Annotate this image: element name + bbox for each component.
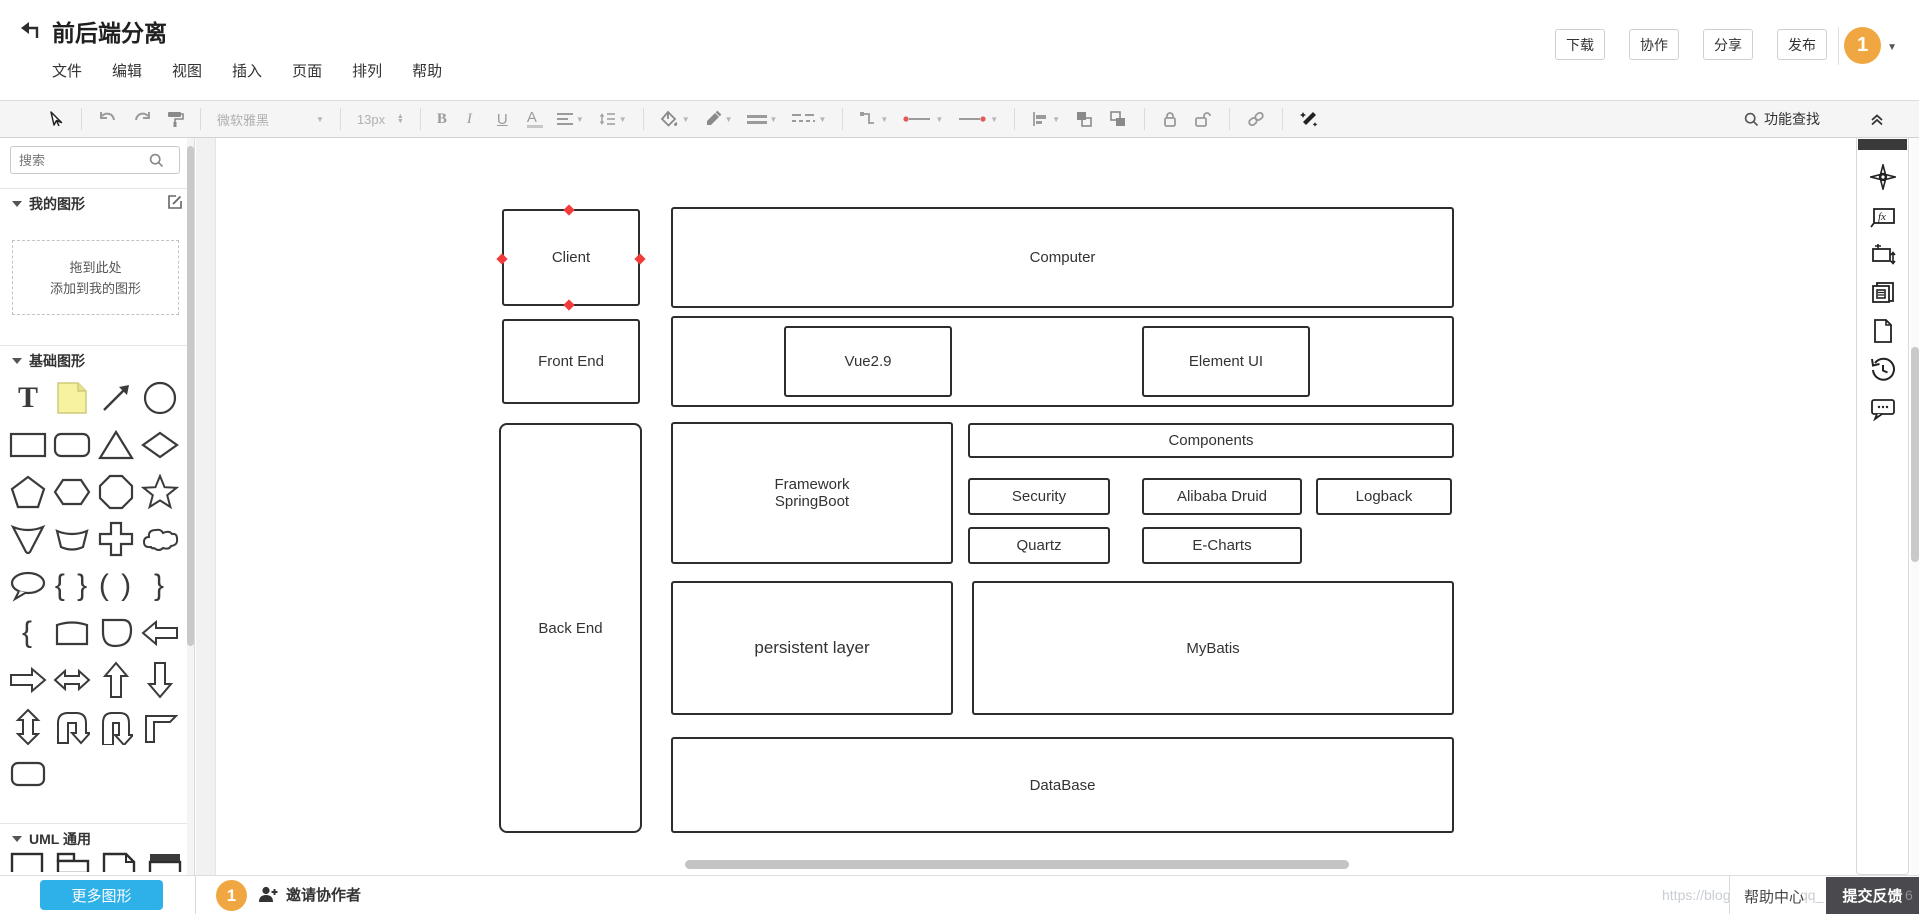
send-backward-button[interactable] (1108, 110, 1128, 128)
format-painter-icon[interactable] (166, 110, 184, 128)
font-color-button[interactable]: A (527, 111, 543, 128)
shape-star[interactable] (138, 472, 182, 512)
node-element-ui[interactable]: Element UI (1142, 326, 1310, 397)
format-toolbar: 微软雅黑▼ 13px ▲▼ B I U A ▼ ▼ ▼ ▼ ▼ ▼ (0, 100, 1919, 138)
node-framework-springboot[interactable]: Framework SpringBoot (671, 422, 953, 564)
section-basic-shapes[interactable]: 基础图形 (0, 345, 195, 375)
collaborator-avatar[interactable]: 1 (216, 880, 247, 911)
menu-insert[interactable]: 插入 (232, 60, 262, 81)
toolbar-separator (1144, 108, 1145, 130)
node-echarts[interactable]: E-Charts (1142, 527, 1302, 564)
chevron-down-icon (12, 358, 22, 364)
right-tool-panel: fx (1856, 138, 1909, 875)
lock-icon[interactable] (1161, 110, 1179, 128)
toolbar-separator (1229, 108, 1230, 130)
node-mybatis[interactable]: MyBatis (972, 581, 1454, 715)
node-quartz[interactable]: Quartz (968, 527, 1110, 564)
menu-view[interactable]: 视图 (172, 60, 202, 81)
line-width-button[interactable]: ▼ (747, 115, 778, 124)
hyperlink-icon[interactable] (1246, 110, 1266, 128)
stroke-color-button[interactable]: ▼ (704, 110, 733, 128)
edit-my-shapes-icon[interactable] (167, 194, 183, 213)
feature-search[interactable]: 功能查找 (1744, 109, 1820, 129)
page-title: 前后端分离 (52, 14, 167, 48)
navigator-icon[interactable] (1870, 164, 1896, 190)
connector-type-button[interactable]: ▼ (859, 111, 888, 127)
canvas-vertical-scrollbar[interactable] (1911, 138, 1919, 875)
shape-brace-pair[interactable]: { } (50, 566, 94, 606)
toolbar-separator (420, 108, 421, 130)
shape-corner[interactable] (138, 707, 182, 747)
watermark-text: https://blog (1662, 887, 1731, 903)
shape-arrow-up-down[interactable] (6, 707, 50, 747)
redo-icon[interactable] (132, 111, 152, 127)
search-icon (1744, 112, 1759, 127)
chevron-down-icon (12, 201, 22, 207)
canvas-horizontal-scrollbar[interactable] (685, 860, 1349, 869)
sidebar-scrollbar[interactable] (187, 138, 194, 875)
connection-handle[interactable] (496, 253, 507, 264)
shape-oval-callout[interactable] (6, 566, 50, 606)
shape-u-turn-arrow[interactable] (50, 707, 94, 747)
node-back-end[interactable]: Back End (499, 423, 642, 833)
canvas-gutter (196, 138, 216, 875)
collaborate-button[interactable]: 协作 (1629, 29, 1679, 60)
toolbar-separator (340, 108, 341, 130)
node-persistent-layer[interactable]: persistent layer (671, 581, 953, 715)
avatar-caret-icon[interactable]: ▼ (1887, 42, 1897, 53)
toolbar-separator (200, 108, 201, 130)
shape-teardrop[interactable] (94, 613, 138, 653)
bottom-bar: 更多图形 1 邀请协作者 https://blog qq_ 帮助中心 提交反馈 … (0, 875, 1919, 914)
shape-cone[interactable] (6, 519, 50, 559)
section-my-shapes[interactable]: 我的图形 (0, 188, 195, 218)
node-logback[interactable]: Logback (1316, 478, 1452, 515)
search-icon (149, 153, 164, 168)
font-size-stepper[interactable]: ▲▼ (397, 114, 404, 124)
node-client[interactable]: Client (502, 209, 640, 306)
shape-search-input[interactable] (19, 153, 149, 168)
header-divider (1838, 27, 1839, 65)
shape-hexagon[interactable] (50, 472, 94, 512)
diagram-canvas[interactable]: Client Computer Front End Vue2.9 Element… (196, 138, 1856, 875)
svg-text:fx: fx (1878, 211, 1886, 223)
shape-text-tool[interactable]: T (6, 378, 50, 418)
select-tool-icon[interactable] (47, 110, 65, 128)
toolbar-separator (643, 108, 644, 130)
page-icon[interactable] (1870, 318, 1896, 344)
node-front-end[interactable]: Front End (502, 319, 640, 404)
footer-divider (1729, 876, 1730, 914)
toolbar-separator (81, 108, 82, 130)
node-database[interactable]: DataBase (671, 737, 1454, 833)
text-align-button[interactable]: ▼ (557, 113, 584, 125)
shape-rectangle[interactable] (6, 425, 50, 465)
toolbar-separator (842, 108, 843, 130)
shape-diamond[interactable] (138, 425, 182, 465)
shape-circle[interactable] (138, 378, 182, 418)
shape-arrow-left[interactable] (138, 613, 182, 653)
shape-paren-pair[interactable]: ( ) (94, 566, 138, 606)
bring-forward-button[interactable] (1074, 110, 1094, 128)
top-actions: 下载 协作 分享 发布 (1555, 29, 1827, 60)
toolbar-separator (1282, 108, 1283, 130)
shape-arrow-right[interactable] (6, 660, 50, 700)
panel-top-bar (1858, 139, 1907, 150)
basic-shape-grid: T { } ( ) } { (6, 378, 182, 794)
menu-arrange[interactable]: 排列 (352, 60, 382, 81)
line-style-button[interactable]: ▼ (791, 112, 826, 126)
line-end-style-button[interactable]: ▼ (957, 114, 998, 124)
invite-collaborator[interactable]: 邀请协作者 (258, 884, 361, 905)
shapes-sidebar: 我的图形 拖到此处 添加到我的图形 基础图形 T (0, 138, 195, 875)
italic-button[interactable]: I (467, 111, 483, 128)
connection-handle[interactable] (634, 253, 645, 264)
shape-search-box[interactable] (10, 146, 180, 174)
toolbar-separator (1014, 108, 1015, 130)
formula-panel-icon[interactable]: fx (1870, 205, 1896, 231)
back-icon[interactable] (16, 17, 42, 48)
menu-help[interactable]: 帮助 (412, 60, 442, 81)
shape-arrow-up[interactable] (94, 660, 138, 700)
collapse-toolbar-icon[interactable] (1869, 111, 1885, 127)
shape-bowed-rectangle[interactable] (50, 613, 94, 653)
align-shapes-button[interactable]: ▼ (1031, 111, 1060, 127)
fill-color-button[interactable]: ▼ (660, 110, 690, 128)
node-components[interactable]: Components (968, 423, 1454, 458)
canvas-size-icon[interactable] (1870, 243, 1896, 269)
menu-bar: 文件 编辑 视图 插入 页面 排列 帮助 (52, 60, 442, 81)
node-alibaba-druid[interactable]: Alibaba Druid (1142, 478, 1302, 515)
shape-pentagon[interactable] (6, 472, 50, 512)
magic-style-icon[interactable] (1299, 109, 1319, 129)
publish-button[interactable]: 发布 (1777, 29, 1827, 60)
shape-arrow-left-right[interactable] (50, 660, 94, 700)
style-panel-icon[interactable] (1870, 280, 1896, 306)
download-button[interactable]: 下载 (1555, 29, 1605, 60)
undo-icon[interactable] (98, 111, 118, 127)
add-user-icon (258, 886, 278, 903)
shape-arrow-line[interactable] (94, 378, 138, 418)
section-uml[interactable]: UML 通用 (0, 823, 195, 853)
font-size-select[interactable]: 13px ▲▼ (357, 112, 404, 127)
shape-cloud[interactable] (138, 519, 182, 559)
menu-file[interactable]: 文件 (52, 60, 82, 81)
watermark-text: 6 (1905, 887, 1913, 903)
history-icon[interactable] (1870, 357, 1896, 383)
shape-right-brace[interactable]: } (138, 566, 182, 606)
shape-arrow-down[interactable] (138, 660, 182, 700)
shape-octagon[interactable] (94, 472, 138, 512)
my-shapes-drop-zone[interactable]: 拖到此处 添加到我的图形 (12, 240, 179, 315)
bold-button[interactable]: B (437, 111, 453, 128)
share-button[interactable]: 分享 (1703, 29, 1753, 60)
node-security[interactable]: Security (968, 478, 1110, 515)
comment-icon[interactable] (1870, 396, 1896, 422)
node-vue[interactable]: Vue2.9 (784, 326, 952, 397)
help-center-link[interactable]: 帮助中心 (1744, 886, 1804, 907)
shape-rounded-rectangle-2[interactable] (6, 754, 50, 794)
footer-divider (195, 876, 196, 914)
line-spacing-button[interactable]: ▼ (598, 111, 627, 127)
menu-page[interactable]: 页面 (292, 60, 322, 81)
connection-handle[interactable] (563, 299, 574, 310)
shape-cross[interactable] (94, 519, 138, 559)
shape-triangle[interactable] (94, 425, 138, 465)
shape-left-brace[interactable]: { (6, 613, 50, 653)
underline-button[interactable]: U (497, 111, 513, 128)
top-header: 前后端分离 文件 编辑 视图 插入 页面 排列 帮助 下载 协作 分享 发布 1… (0, 0, 1919, 100)
shape-arc-band[interactable] (50, 519, 94, 559)
app: 前后端分离 文件 编辑 视图 插入 页面 排列 帮助 下载 协作 分享 发布 1… (0, 0, 1919, 914)
uml-shapes-partial[interactable] (10, 850, 182, 872)
connection-handle[interactable] (563, 204, 574, 215)
shape-u-turn-arrow-2[interactable] (94, 707, 138, 747)
user-avatar[interactable]: 1 (1844, 27, 1881, 64)
shape-sticky-note[interactable] (50, 378, 94, 418)
shape-rounded-rectangle[interactable] (50, 425, 94, 465)
node-computer[interactable]: Computer (671, 207, 1454, 308)
font-family-select[interactable]: 微软雅黑▼ (217, 110, 324, 129)
line-start-style-button[interactable]: ▼ (902, 114, 943, 124)
chevron-down-icon (12, 836, 22, 842)
more-shapes-button[interactable]: 更多图形 (40, 880, 163, 910)
unlock-icon[interactable] (1193, 110, 1213, 128)
menu-edit[interactable]: 编辑 (112, 60, 142, 81)
